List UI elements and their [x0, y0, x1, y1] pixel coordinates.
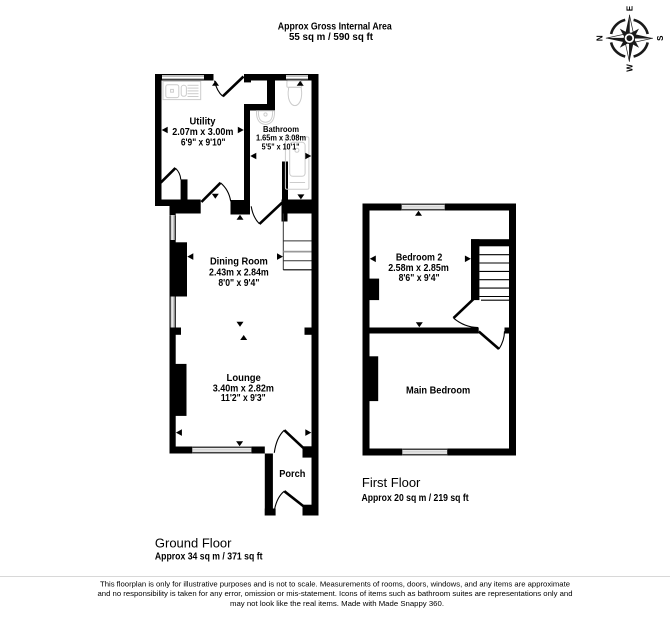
svg-text:8'6" x 9'4": 8'6" x 9'4"	[399, 273, 440, 284]
svg-text:6'9" x 9'10": 6'9" x 9'10"	[181, 138, 226, 149]
svg-text:Bathroom: Bathroom	[263, 125, 299, 134]
svg-text:Main Bedroom: Main Bedroom	[406, 386, 470, 397]
svg-text:5'5" x 10'1": 5'5" x 10'1"	[262, 143, 300, 152]
svg-text:may not look like the real ite: may not look like the real items. Made w…	[230, 599, 444, 608]
svg-text:11'2" x 9'3": 11'2" x 9'3"	[221, 393, 266, 404]
svg-text:Approx Gross Internal Area: Approx Gross Internal Area	[278, 21, 392, 32]
svg-text:Utility: Utility	[190, 116, 216, 127]
svg-text:Bedroom 2: Bedroom 2	[396, 253, 443, 264]
svg-text:Dining Room: Dining Room	[210, 256, 268, 267]
svg-text:This floorplan is only for ill: This floorplan is only for illustrative …	[100, 579, 570, 588]
svg-text:Porch: Porch	[279, 469, 305, 480]
svg-text:Approx 20 sq m / 219 sq ft: Approx 20 sq m / 219 sq ft	[362, 493, 470, 504]
svg-text:2.07m x 3.00m: 2.07m x 3.00m	[172, 127, 233, 138]
svg-text:1.65m x 3.08m: 1.65m x 3.08m	[256, 134, 306, 143]
svg-text:2.43m x 2.84m: 2.43m x 2.84m	[209, 267, 269, 278]
svg-text:N: N	[596, 35, 605, 41]
svg-text:and no responsibility is taken: and no responsibility is taken for any e…	[98, 589, 573, 598]
svg-text:S: S	[656, 35, 665, 41]
svg-text:Approx 34 sq m / 371 sq ft: Approx 34 sq m / 371 sq ft	[155, 552, 263, 563]
svg-text:8'0" x 9'4": 8'0" x 9'4"	[218, 278, 259, 289]
svg-text:First Floor: First Floor	[362, 475, 421, 490]
svg-text:E: E	[625, 5, 634, 11]
svg-text:Ground Floor: Ground Floor	[155, 535, 232, 550]
svg-text:55 sq m / 590 sq ft: 55 sq m / 590 sq ft	[289, 32, 374, 43]
svg-text:W: W	[625, 64, 634, 72]
